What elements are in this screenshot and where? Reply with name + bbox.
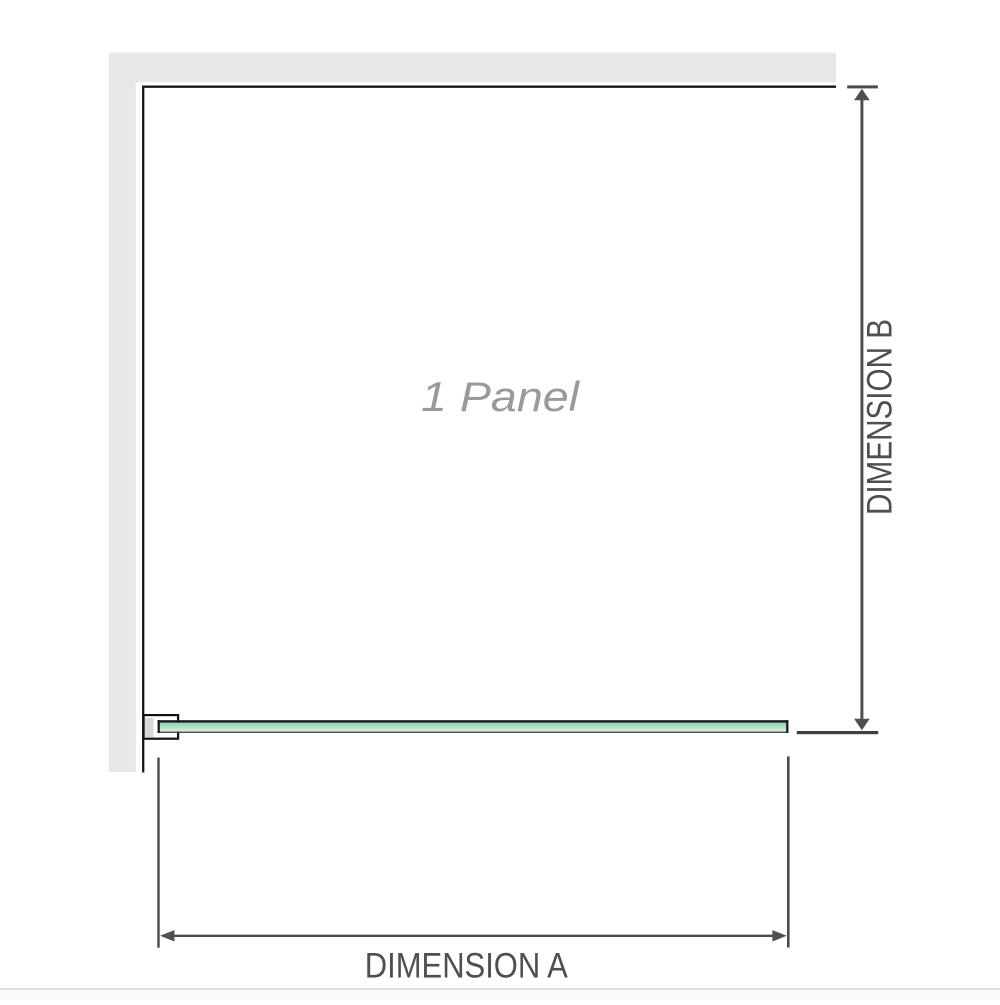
svg-text:DIMENSION A: DIMENSION A <box>365 947 569 986</box>
svg-text:DIMENSION B: DIMENSION B <box>861 319 900 515</box>
svg-text:1 Panel: 1 Panel <box>421 373 581 420</box>
